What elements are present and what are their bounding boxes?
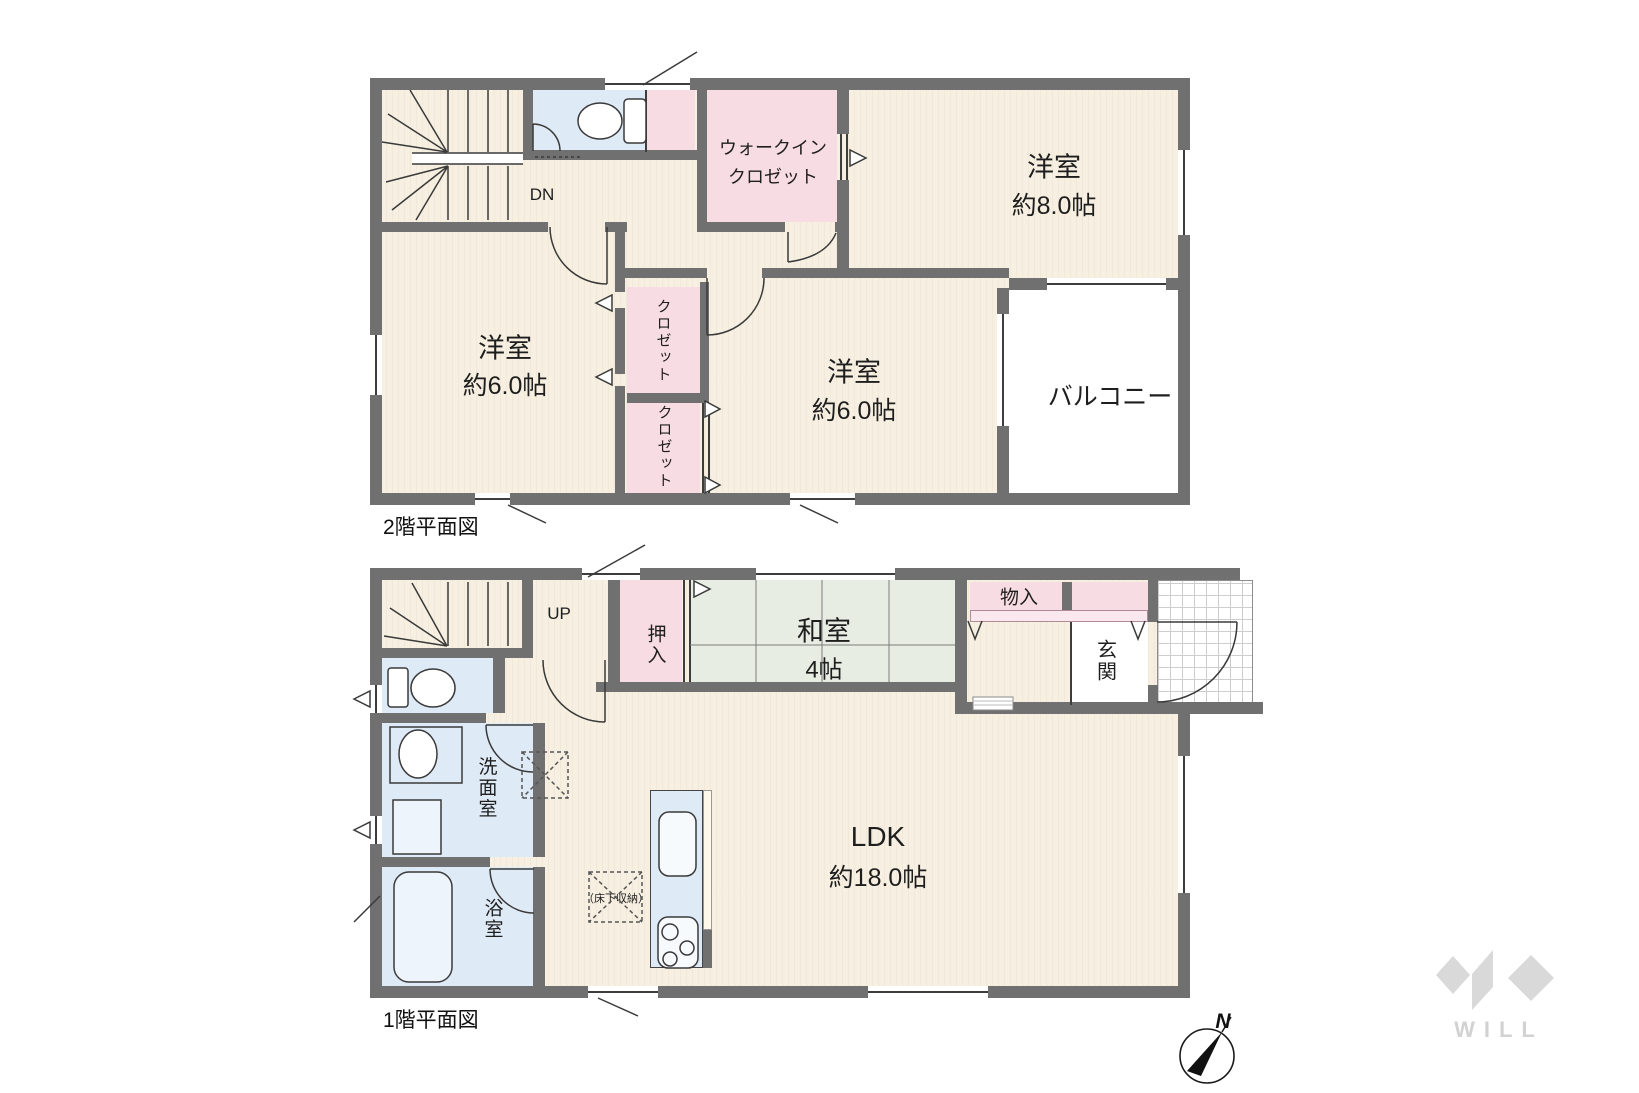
wall	[523, 88, 533, 152]
wall	[370, 78, 1190, 90]
stairs-direction-label: DN	[530, 185, 555, 205]
logo-wordmark: WILL	[1454, 1017, 1544, 1043]
wall	[533, 723, 545, 857]
window	[475, 493, 510, 505]
wall	[370, 986, 1190, 998]
vent-mark	[598, 998, 638, 1016]
window	[370, 335, 382, 395]
stairs-direction-label: UP	[547, 604, 571, 624]
storage-nook-2f	[647, 90, 695, 152]
bathroom-label: 浴室	[479, 898, 506, 940]
wall	[382, 222, 548, 232]
closet-label: クロゼット	[654, 405, 675, 490]
wall	[997, 426, 1009, 493]
storage-room	[1072, 582, 1148, 610]
room-name: 洋室	[478, 327, 532, 366]
wall	[1148, 580, 1158, 622]
storage-shelf	[970, 610, 1148, 622]
vent-mark	[508, 505, 546, 523]
wall	[533, 867, 545, 986]
wall	[700, 282, 709, 403]
floorplan-sheet: DN ウォークイン クロゼット 洋室 約8.0帖 洋室 約6.0帖 クロゼット …	[0, 0, 1639, 1093]
window	[1047, 278, 1166, 290]
sliding-door-track	[689, 580, 691, 682]
window	[370, 685, 382, 713]
balcony-label: バルコニー	[1048, 377, 1173, 413]
wall	[955, 702, 1263, 714]
wall	[522, 580, 533, 650]
sliding-door-track	[702, 403, 704, 493]
sliding-door-track	[840, 134, 842, 180]
wall	[370, 78, 382, 505]
window	[605, 78, 690, 90]
compass-north-label: N	[1215, 1010, 1230, 1034]
will-logo-icon	[1436, 950, 1554, 1010]
window	[588, 986, 658, 998]
window	[370, 816, 382, 844]
partition-line	[645, 90, 647, 152]
wall	[997, 288, 1009, 314]
storage-label: 物入	[1000, 583, 1038, 610]
room-size: 約8.0帖	[1012, 186, 1097, 222]
wall	[605, 222, 627, 232]
wall	[370, 568, 382, 998]
washroom-label: 洗面室	[473, 757, 500, 820]
wall	[523, 150, 707, 160]
wall	[627, 393, 700, 403]
vent-mark	[800, 505, 838, 523]
kitchen-counter	[650, 790, 703, 968]
walk-in-closet-label: ウォークイン	[719, 134, 827, 160]
floor1-caption: 1階平面図	[383, 1004, 479, 1034]
toilet-room-2f	[533, 90, 645, 152]
wall	[615, 386, 625, 493]
wall	[837, 180, 849, 278]
room-size: 約18.0帖	[829, 858, 928, 894]
window	[790, 493, 855, 505]
wall	[955, 580, 967, 712]
wall	[615, 308, 625, 374]
wall	[370, 648, 533, 658]
wall	[697, 88, 707, 232]
wall	[1166, 278, 1190, 290]
wall	[608, 580, 620, 682]
wall	[596, 682, 955, 692]
entrance-porch-tiles	[1157, 580, 1253, 705]
room-name: 洋室	[1027, 146, 1081, 185]
room-name: 洋室	[827, 351, 881, 390]
room-name: LDK	[851, 821, 905, 853]
bathroom	[382, 867, 533, 986]
room-name: 和室	[797, 610, 851, 649]
room-size: 約6.0帖	[812, 391, 897, 427]
floor2-caption: 2階平面図	[383, 511, 479, 541]
wall	[762, 268, 1009, 278]
window	[868, 986, 988, 998]
wall	[1178, 78, 1190, 505]
wall	[1009, 278, 1047, 290]
wall	[837, 88, 849, 134]
window	[756, 568, 895, 580]
window	[1178, 756, 1190, 893]
sliding-door-track	[683, 580, 685, 682]
wall	[697, 222, 785, 232]
washroom	[382, 723, 533, 857]
wall	[370, 857, 490, 867]
oshiire-label: 押入	[642, 624, 669, 666]
window	[582, 568, 640, 580]
underfloor-storage-label: （床下収納）	[583, 890, 649, 906]
wall	[615, 232, 625, 292]
wall	[370, 713, 486, 723]
closet-label: クロゼット	[653, 299, 674, 384]
room-size: 約6.0帖	[463, 366, 548, 402]
sliding-door-track	[846, 134, 848, 180]
window	[1178, 150, 1190, 235]
window	[997, 314, 1009, 426]
toilet-room-1f	[382, 658, 493, 713]
wall	[1062, 582, 1072, 610]
room-size: 4帖	[805, 650, 842, 685]
kitchen-counter-edge	[703, 790, 712, 930]
sliding-door-track	[708, 403, 710, 493]
walk-in-closet-label: クロゼット	[728, 163, 818, 189]
entrance-step-line	[1070, 622, 1072, 705]
entrance-label: 玄関	[1091, 639, 1120, 683]
wall	[615, 268, 707, 278]
wall	[703, 930, 712, 968]
wall	[493, 658, 505, 713]
